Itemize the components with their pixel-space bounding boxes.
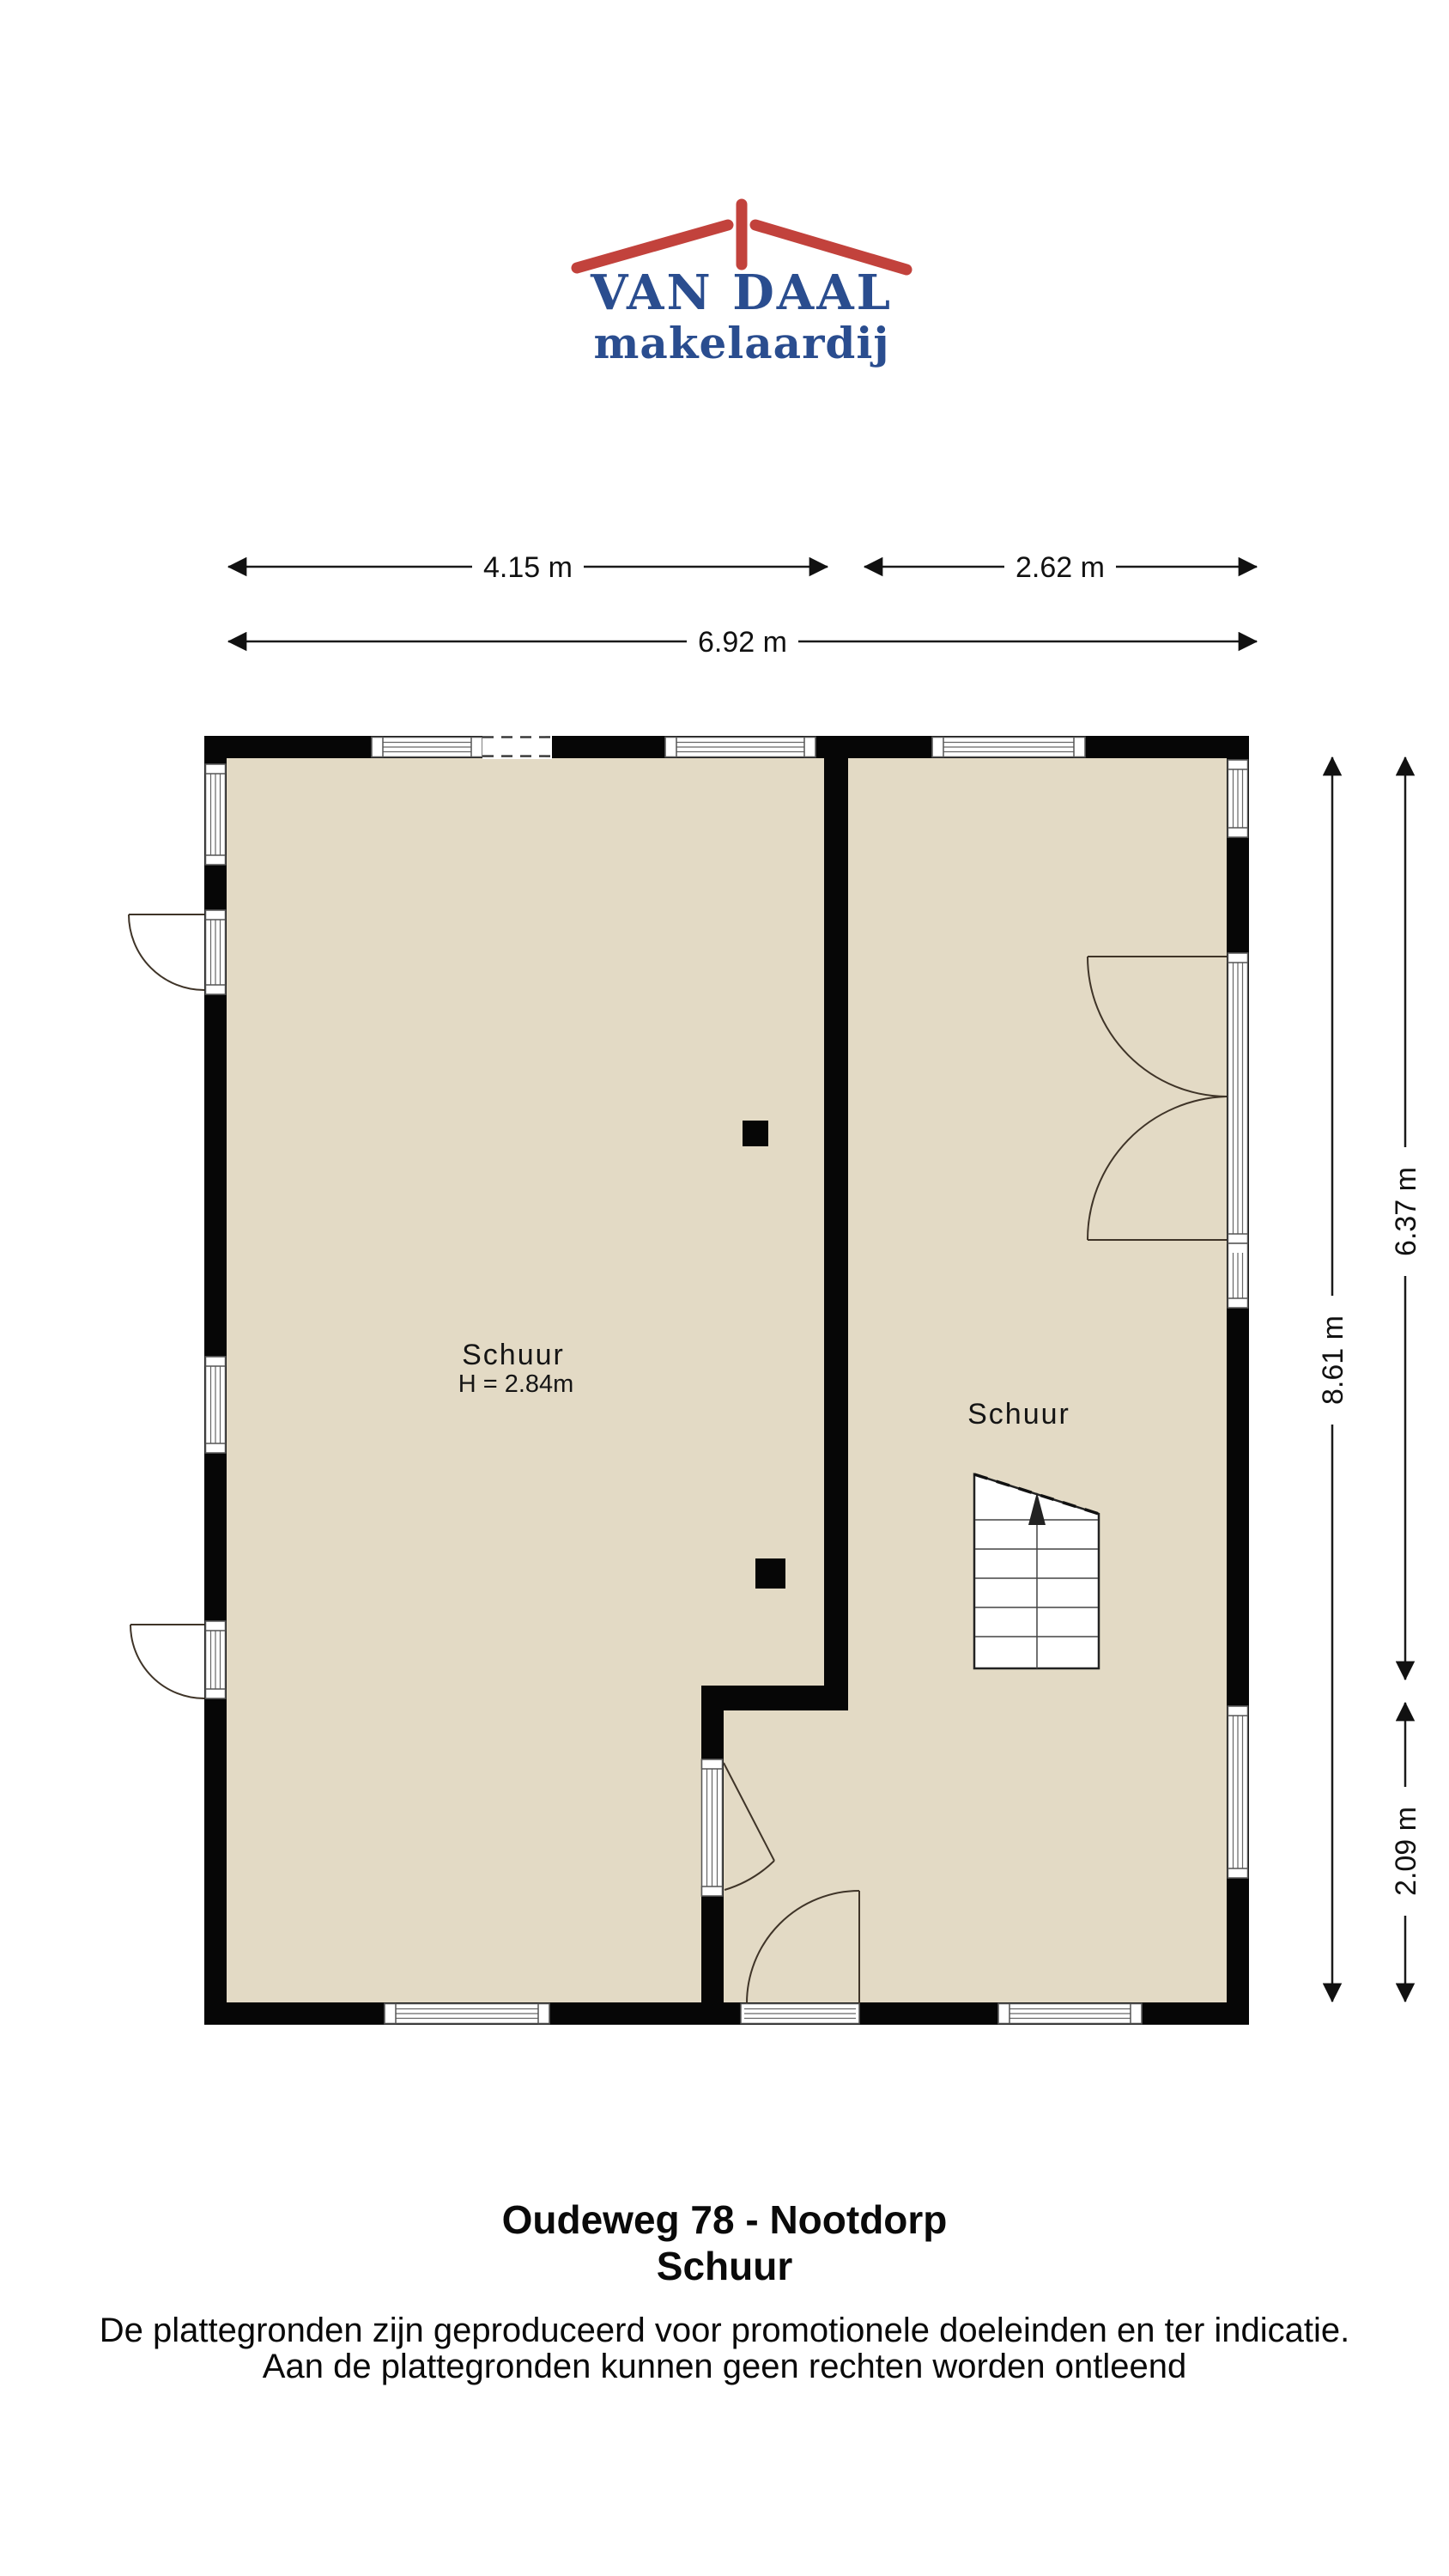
opening-top-dashed — [482, 735, 552, 759]
window-left-1 — [206, 764, 226, 865]
room-height-left: H = 2.84m — [458, 1370, 574, 1398]
logo-subname: makelaardij — [594, 318, 890, 368]
pillar-lower — [755, 1558, 785, 1589]
door-arc — [129, 914, 204, 990]
dimension-right-lower: 2.09 m — [1385, 1703, 1425, 2002]
dimension-top-total: 6.92 m — [228, 623, 1257, 660]
footer-disclaimer-line1: De plattegronden zijn geproduceerd voor … — [0, 2312, 1449, 2350]
dimension-label: 2.62 m — [1016, 551, 1105, 584]
pillar-upper — [743, 1121, 768, 1146]
window-bottom-1 — [385, 2004, 549, 2024]
agency-logo: VAN DAAL makelaardij — [577, 204, 906, 368]
roof-icon — [577, 204, 906, 270]
dimension-label: 6.37 m — [1390, 1167, 1422, 1256]
floorplan-page: VAN DAAL makelaardij 4.15 m 2.62 m 6.92 … — [0, 0, 1449, 2576]
window-top-3 — [932, 738, 1085, 757]
window-right-2 — [1228, 1243, 1248, 1308]
dimension-label: 6.92 m — [698, 626, 787, 659]
wall-interior-upper — [824, 736, 848, 1710]
window-right-1 — [1228, 760, 1248, 837]
dimension-label: 4.15 m — [483, 551, 573, 584]
logo-name: VAN DAAL — [590, 264, 893, 321]
dimension-label: 2.09 m — [1390, 1807, 1422, 1896]
window-right-3 — [1228, 1706, 1248, 1878]
footer-disclaimer-line2: Aan de plattegronden kunnen geen rechten… — [0, 2348, 1449, 2386]
window-top-2 — [665, 738, 815, 757]
footer-title: Oudeweg 78 - Nootdorp — [0, 2196, 1449, 2243]
dimension-top-right: 2.62 m — [864, 548, 1257, 586]
footer-subtitle: Schuur — [0, 2243, 1449, 2289]
dimension-label: 8.61 m — [1317, 1315, 1349, 1405]
window-left-2 — [206, 1357, 226, 1453]
floor-area — [215, 745, 1239, 2014]
window-bottom-2 — [998, 2004, 1142, 2024]
dimension-right-full: 8.61 m — [1313, 757, 1352, 2002]
door-left-lower — [130, 1621, 226, 1698]
dimension-right-upper: 6.37 m — [1385, 757, 1425, 1680]
window-top-1 — [372, 738, 482, 757]
door-arc — [130, 1625, 204, 1698]
dimension-top-left: 4.15 m — [228, 548, 828, 586]
room-label-left: Schuur — [462, 1339, 565, 1371]
floorplan-drawing: VAN DAAL makelaardij 4.15 m 2.62 m 6.92 … — [0, 0, 1449, 2576]
door-left-upper — [129, 910, 226, 994]
room-label-right: Schuur — [967, 1398, 1070, 1431]
